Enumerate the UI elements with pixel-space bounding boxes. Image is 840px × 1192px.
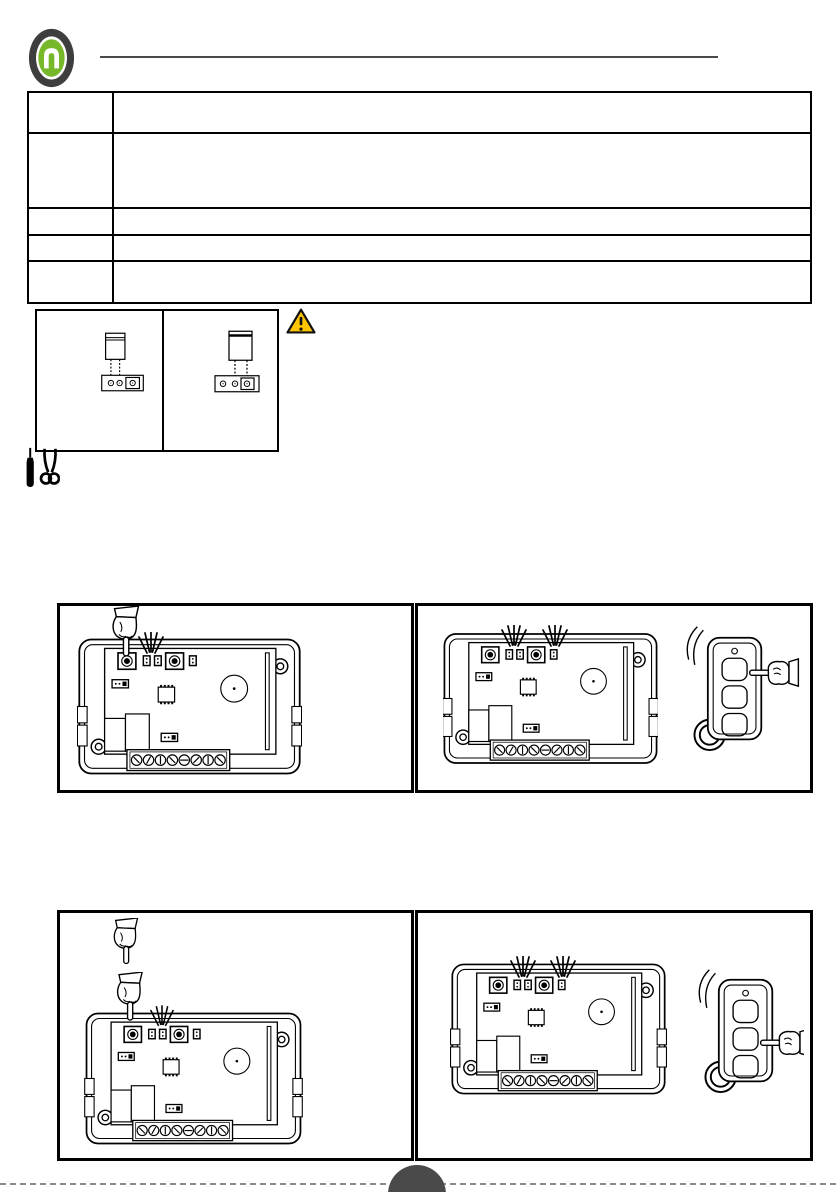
table-cell	[28, 235, 113, 261]
jumper-cap-pins-2-3-icon	[208, 327, 268, 397]
pointing-hand-icon	[114, 918, 137, 964]
control-unit-illustration	[451, 964, 667, 1093]
table-row	[28, 133, 811, 208]
table-cell	[28, 92, 113, 133]
table-cell	[113, 133, 811, 208]
control-unit-illustration	[443, 634, 659, 763]
radio-waves-icon	[687, 627, 703, 665]
remote-control-illustration	[705, 980, 772, 1092]
table-cell	[113, 235, 811, 261]
table-row	[28, 261, 811, 303]
figure-step-4	[415, 910, 813, 1161]
table-row	[28, 235, 811, 261]
figure-step-1	[57, 603, 414, 793]
jumper-variant-a-cell	[37, 311, 164, 450]
table-cell	[113, 208, 811, 235]
page-number-badge	[388, 1165, 446, 1192]
figure-step-3	[57, 910, 414, 1161]
jumper-cap-pins-1-2-icon	[94, 329, 152, 395]
table-cell	[28, 208, 113, 235]
warning-triangle-icon	[285, 307, 317, 336]
spec-table	[27, 91, 812, 304]
control-unit-illustration	[85, 1013, 303, 1143]
table-cell	[28, 133, 113, 208]
manual-page	[0, 0, 840, 1192]
marker-and-scissors-icon	[21, 447, 61, 492]
table-cell	[28, 261, 113, 303]
brand-logo-icon	[28, 27, 75, 89]
table-row	[28, 208, 811, 235]
table-row	[28, 92, 811, 133]
table-cell	[113, 92, 811, 133]
jumper-figure-box	[35, 309, 279, 452]
control-unit-illustration	[77, 639, 301, 773]
jumper-variant-b-cell	[164, 311, 277, 450]
table-cell	[113, 261, 811, 303]
figure-step-2	[415, 603, 813, 793]
remote-control-illustration	[694, 638, 761, 750]
header-rule	[100, 56, 718, 58]
radio-waves-icon	[699, 970, 715, 1008]
